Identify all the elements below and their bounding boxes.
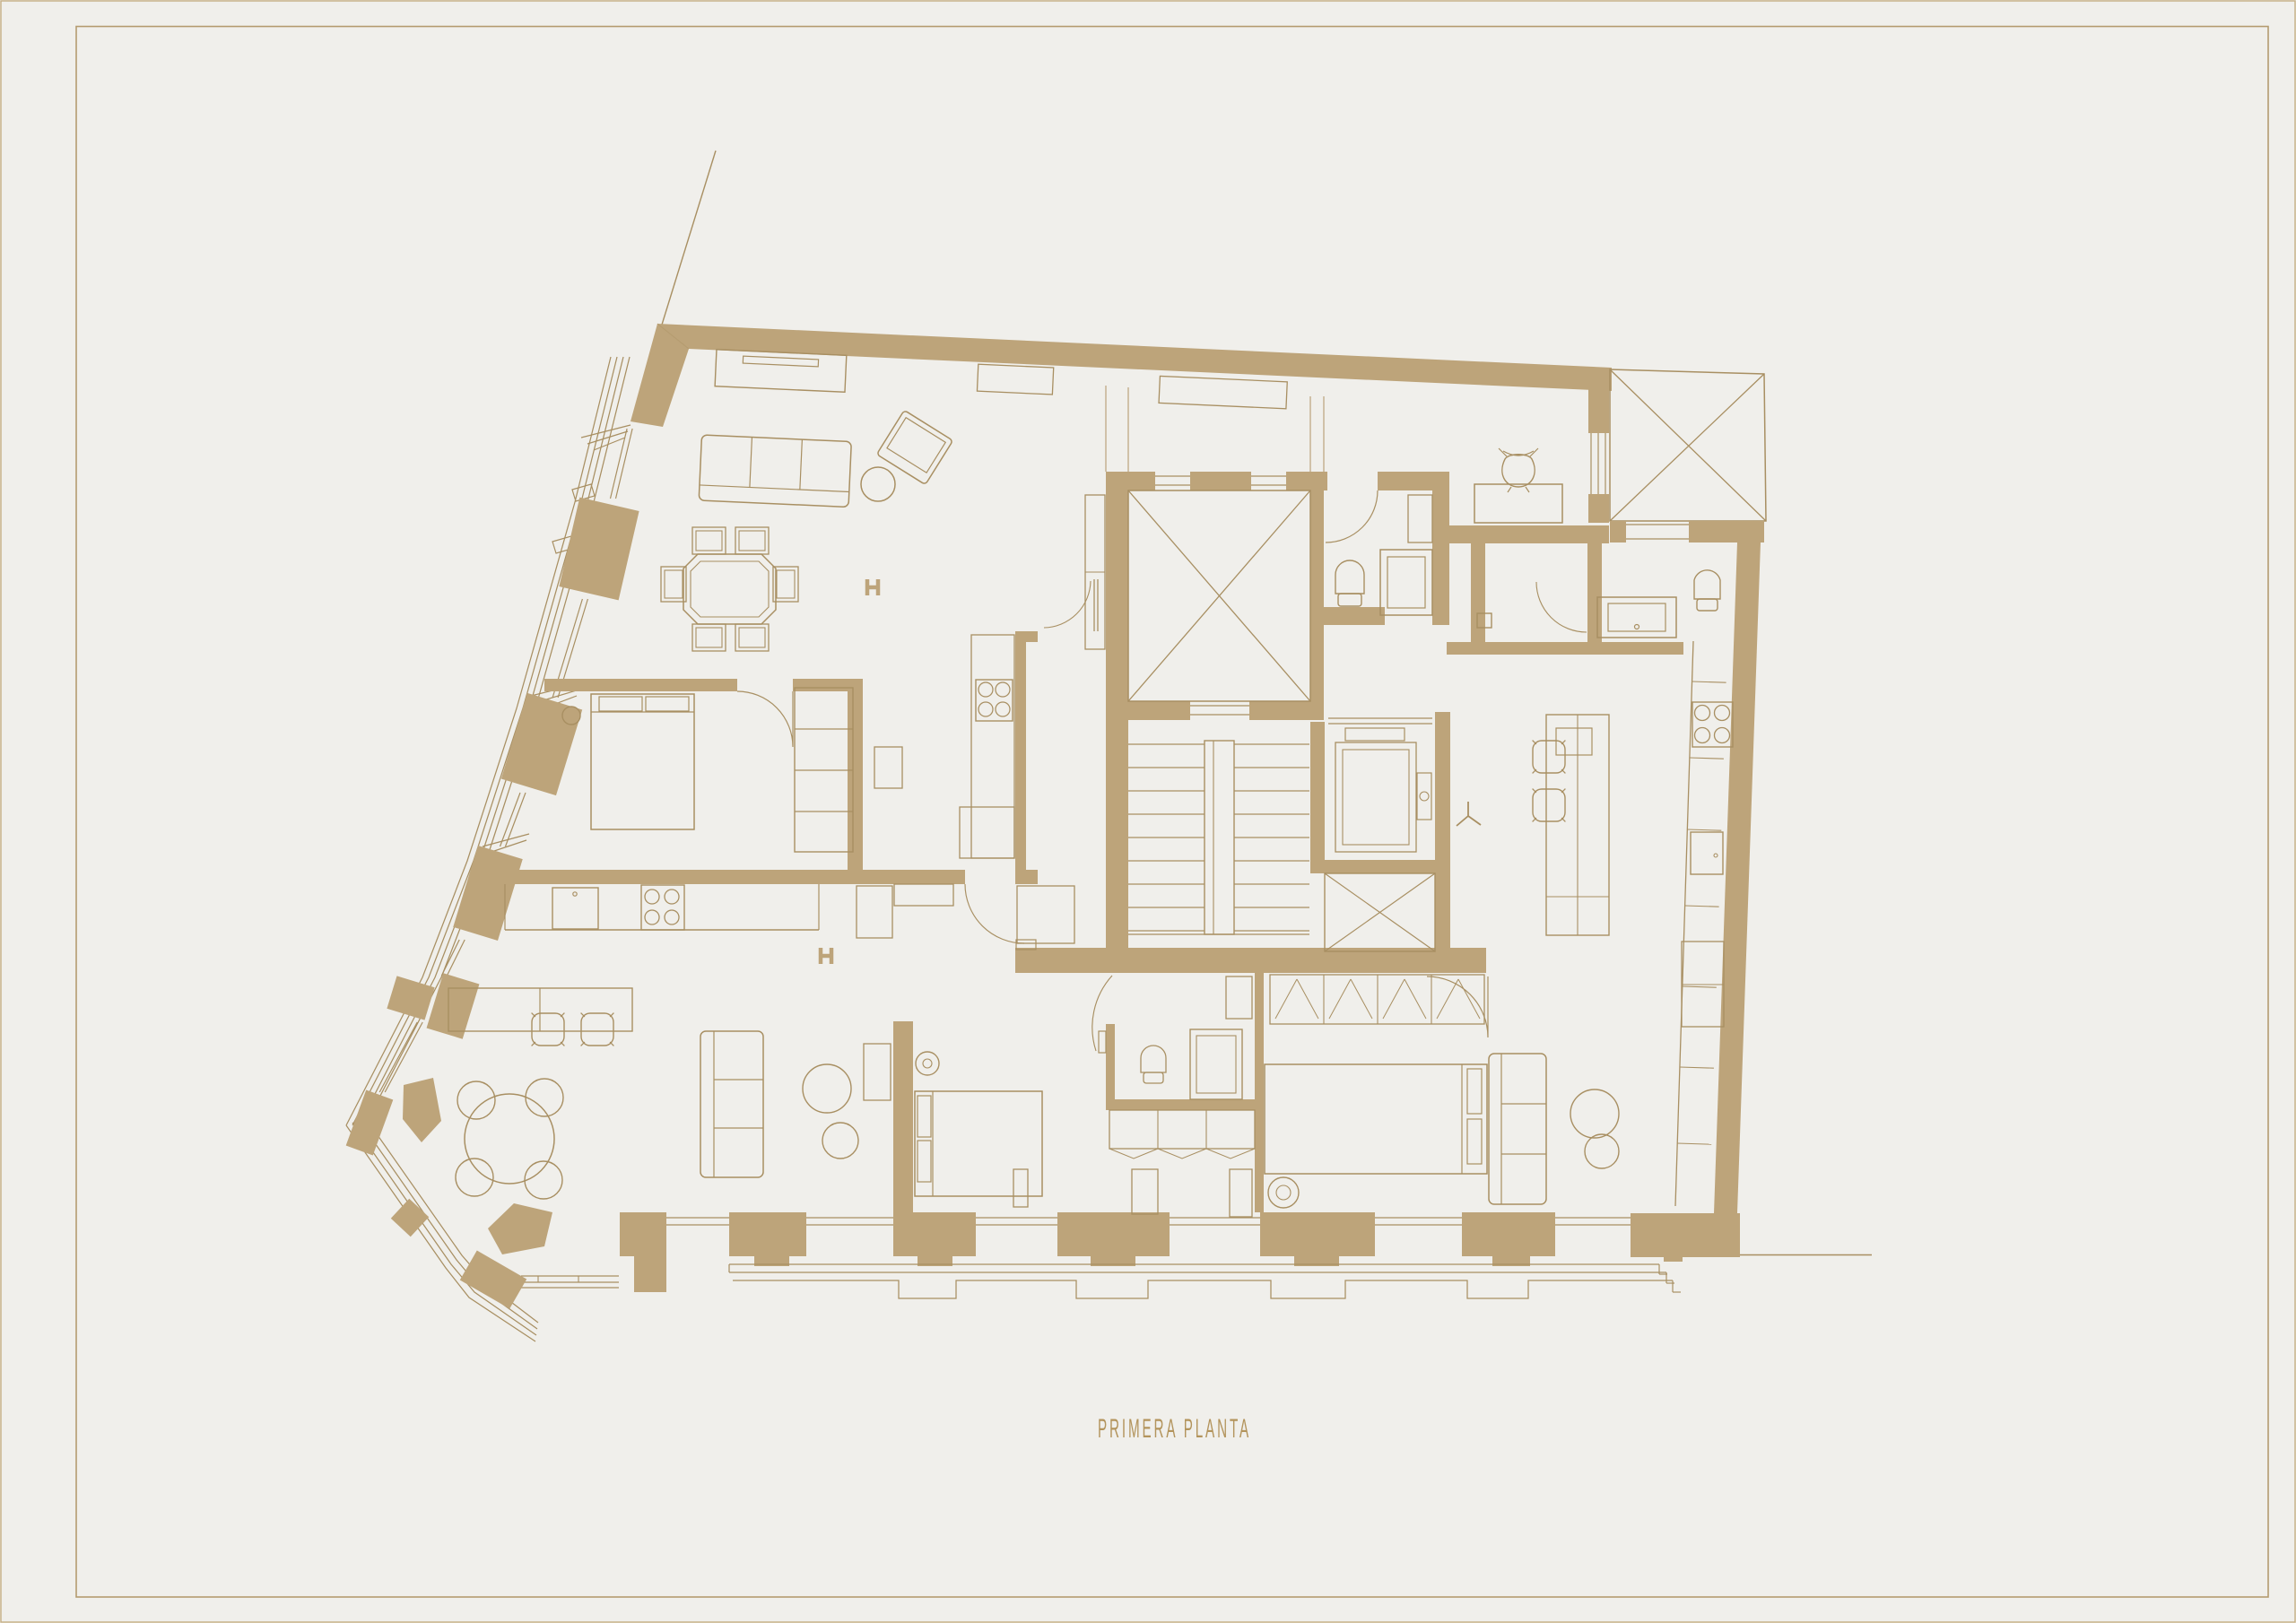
svg-text:PRIMERA PLANTA: PRIMERA PLANTA xyxy=(1098,1414,1251,1444)
